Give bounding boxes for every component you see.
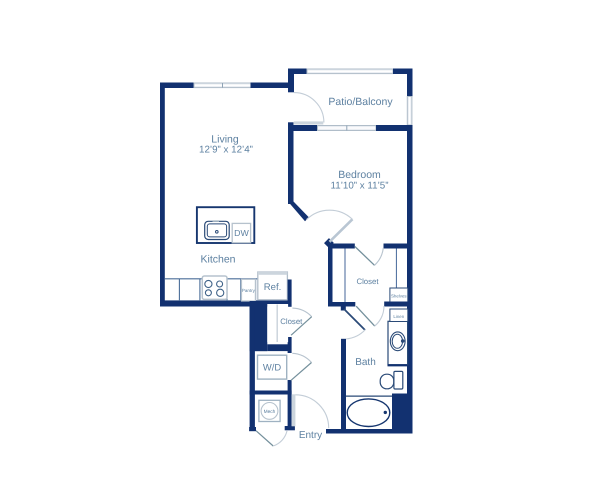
svg-text:Linen: Linen — [393, 314, 404, 319]
svg-text:DW: DW — [234, 228, 249, 238]
svg-text:Pantry: Pantry — [242, 288, 256, 293]
svg-text:Closet: Closet — [280, 317, 303, 326]
svg-text:Shelves: Shelves — [391, 294, 407, 299]
svg-text:12’9” x 12’4”: 12’9” x 12’4” — [199, 145, 253, 156]
svg-text:Patio/Balcony: Patio/Balcony — [328, 96, 393, 108]
svg-text:Bedroom: Bedroom — [338, 169, 381, 181]
svg-text:Kitchen: Kitchen — [200, 254, 235, 266]
svg-text:W/D: W/D — [263, 362, 281, 373]
svg-text:Closet: Closet — [356, 277, 379, 286]
svg-text:Mech: Mech — [264, 409, 276, 415]
svg-text:Ref.: Ref. — [264, 282, 282, 293]
svg-text:Bath: Bath — [355, 357, 376, 368]
svg-text:11’10” x 11’5”: 11’10” x 11’5” — [331, 180, 389, 191]
svg-text:Entry: Entry — [299, 430, 322, 441]
